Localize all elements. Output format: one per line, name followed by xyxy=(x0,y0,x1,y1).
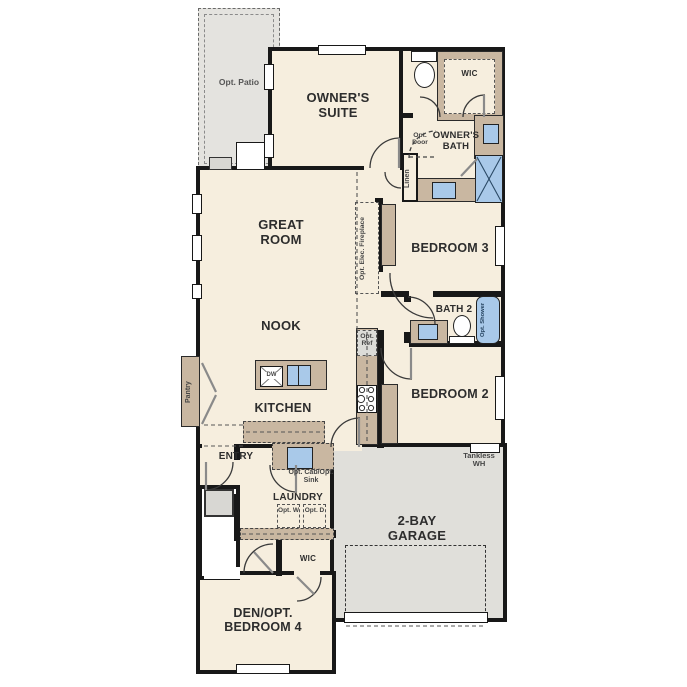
owners-suite-label: OWNER'S SUITE xyxy=(292,91,384,120)
opt-ref-label: Opt. Ref xyxy=(356,333,378,348)
greatroom-window-2 xyxy=(192,235,202,261)
opt-door-label: Opt. Door xyxy=(406,132,434,147)
stove xyxy=(357,385,377,413)
wic-bottom-label: WIC xyxy=(292,555,324,564)
wic-door-opening xyxy=(294,567,320,577)
media-niche-left xyxy=(209,157,232,170)
den-window xyxy=(236,664,290,674)
bedroom3-window xyxy=(495,226,505,266)
entry-label: ENTRY xyxy=(212,451,260,462)
laundry-label: LAUNDRY xyxy=(270,492,326,503)
entry-counter xyxy=(243,421,325,443)
nook-label: NOOK xyxy=(252,319,310,334)
garage-parking-outline xyxy=(345,545,486,616)
dishwasher-label: DW xyxy=(262,372,281,379)
bath2-toilet-bowl xyxy=(453,315,471,337)
opt-shower-label: Opt. Shower xyxy=(481,299,487,341)
bath2-left-wall-a xyxy=(404,296,411,302)
linen-label: Linen xyxy=(404,160,411,198)
opt-patio-label: Opt. Patio xyxy=(205,78,273,87)
patio-pad xyxy=(236,142,265,170)
bedroom2-closet xyxy=(381,384,398,444)
tankless-wh-label: Tankless WH xyxy=(456,452,502,469)
hall-wic-divider xyxy=(276,536,282,576)
greatroom-window-1 xyxy=(192,194,202,214)
bath2-label: BATH 2 xyxy=(430,304,478,315)
floor-plan: Opt. Patio OWNER'S SUITE WIC OWNER'S BAT… xyxy=(0,0,687,687)
fireplace-label: Opt. Elec. Fireplace xyxy=(360,206,367,290)
wic-top-label: WIC xyxy=(444,70,495,79)
garage-door xyxy=(344,612,488,623)
laundry-sink xyxy=(287,447,313,469)
garage-label: 2-BAY GARAGE xyxy=(382,514,452,543)
wic-top-floor xyxy=(444,59,495,114)
owners-shower xyxy=(475,155,503,203)
kitchen-sink xyxy=(287,365,311,386)
opt-cab-sink-label: Opt. Cab/Opt. Sink xyxy=(288,469,334,484)
bath2-sink xyxy=(418,324,438,340)
porch-column xyxy=(204,489,234,517)
hall-corridor-opening xyxy=(380,170,402,206)
toilet-room-wall xyxy=(399,113,413,118)
owners-toilet-bowl xyxy=(414,62,435,88)
kitchen-sink-divider xyxy=(288,366,299,385)
bedroom2-window xyxy=(495,376,505,420)
den-entrance-opening xyxy=(204,567,240,579)
suite-top-window xyxy=(318,45,366,55)
laundry-lower-counter xyxy=(240,528,334,540)
den-label: DEN/OPT. BEDROOM 4 xyxy=(210,606,316,634)
opt-washer-label: Opt. W xyxy=(278,507,299,514)
greatroom-window-3 xyxy=(192,284,202,299)
bedroom3-closet xyxy=(381,204,396,266)
kitchen-label: KITCHEN xyxy=(248,401,318,415)
opt-dryer-label: Opt. D xyxy=(304,507,325,514)
bath2-toilet-base xyxy=(449,336,475,344)
bedroom2-label: BEDROOM 2 xyxy=(406,387,494,401)
suite-left-window-2 xyxy=(264,134,274,158)
owners-sink-bottom xyxy=(432,182,456,199)
pantry-label: Pantry xyxy=(185,369,192,415)
bedroom3-label: BEDROOM 3 xyxy=(406,241,494,255)
great-room-label: GREAT ROOM xyxy=(246,218,316,247)
owners-toilet-tank xyxy=(411,51,437,62)
